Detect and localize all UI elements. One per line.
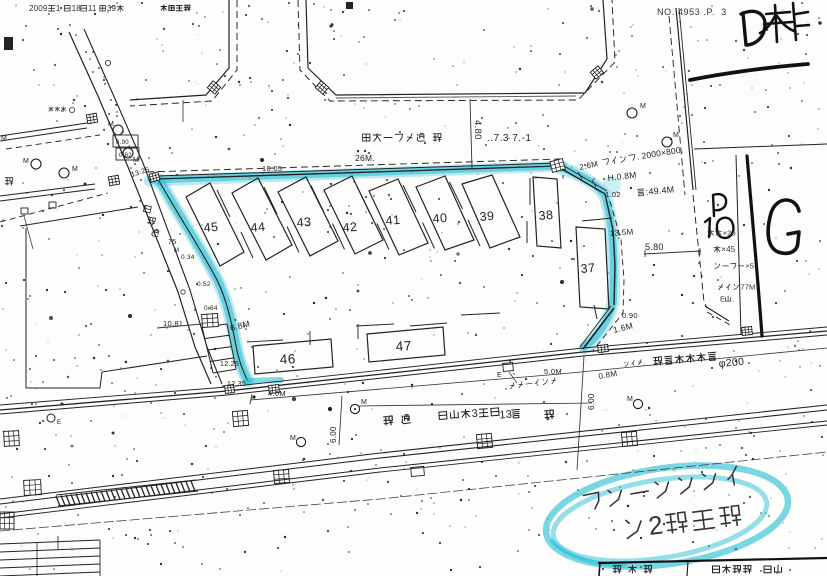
svg-text:0.34: 0.34 [181,254,195,261]
svg-text:E: E [497,372,502,379]
svg-text:77M: 77M [740,283,755,292]
svg-text:φ200: φ200 [718,356,744,370]
svg-text:44: 44 [250,220,266,235]
svg-text:1: 1 [56,4,61,13]
svg-text:41: 41 [385,213,401,228]
svg-text:3: 3 [471,408,478,420]
svg-text:M: M [133,157,139,164]
svg-text:×5: ×5 [745,262,754,271]
svg-text:13: 13 [499,409,512,422]
svg-text:M: M [174,248,179,254]
svg-text:M: M [23,158,29,165]
svg-text:39: 39 [107,4,117,13]
svg-text:12.25: 12.25 [220,361,239,368]
svg-text:26M.: 26M. [355,153,375,163]
svg-text:4.0M: 4.0M [268,389,286,398]
svg-text:M: M [72,166,78,173]
svg-text:1.02: 1.02 [605,190,621,199]
svg-text:E: E [57,420,61,426]
svg-text:E: E [720,295,725,304]
svg-text:12.35: 12.35 [227,381,246,388]
svg-text:42: 42 [342,220,358,235]
svg-text:75: 75 [168,239,176,246]
svg-text:38: 38 [538,208,554,223]
svg-text:M: M [290,435,296,442]
svg-text:0.52: 0.52 [197,281,211,288]
svg-text:11: 11 [88,4,97,13]
svg-text:M: M [108,121,114,128]
svg-text:M: M [640,103,646,110]
svg-text:39: 39 [479,209,495,224]
svg-text:NO. 4953 .P. 3: NO. 4953 .P. 3 [657,7,727,17]
svg-text:M: M [1,135,7,142]
svg-text:6.00: 6.00 [329,426,338,443]
svg-text:37: 37 [580,261,596,276]
svg-text:5.80: 5.80 [645,242,664,252]
svg-text:×26: ×26 [723,229,736,238]
svg-text:5.0M: 5.0M [544,367,562,376]
svg-text:6.00: 6.00 [587,393,596,410]
svg-text:×45: ×45 [721,245,735,254]
svg-text:0.90: 0.90 [622,311,638,320]
svg-text:..7.3 7.-1: ..7.3 7.-1 [487,133,531,144]
svg-text:43: 43 [296,215,312,230]
svg-text:18: 18 [72,4,82,13]
svg-text:0.82: 0.82 [119,153,132,159]
svg-text:13.5M: 13.5M [610,227,634,238]
svg-text:47: 47 [395,338,412,354]
svg-text:0.90: 0.90 [116,140,129,146]
svg-text:45: 45 [203,220,219,235]
svg-text:.: . [732,295,734,304]
svg-text:M: M [361,399,367,406]
svg-text:0.84: 0.84 [204,305,218,312]
svg-text:46: 46 [279,351,296,367]
svg-text:M: M [673,132,679,139]
svg-text:40: 40 [432,211,448,226]
svg-text:10.05: 10.05 [262,164,282,173]
svg-text:M: M [627,396,633,403]
svg-text:2009: 2009 [29,4,48,13]
svg-text:4.80: 4.80 [472,120,483,140]
svg-text:’: ’ [15,3,17,13]
